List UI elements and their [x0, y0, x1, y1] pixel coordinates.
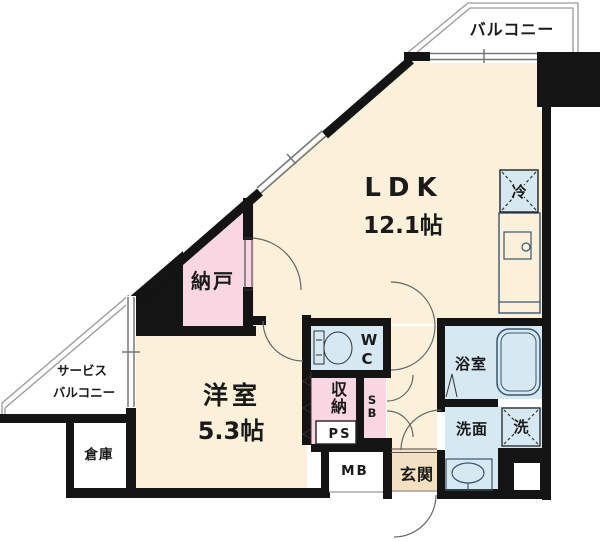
western-room-label: 洋室 [203, 381, 261, 410]
pipe-space-label: PS [329, 427, 352, 442]
service-balcony-label-2: バルコニー [53, 385, 115, 400]
floor-plan: バルコニー サービス バルコニー 冷 [0, 0, 600, 541]
warehouse-label: 倉庫 [84, 446, 114, 463]
ldk-label: LDK [364, 173, 443, 203]
wall-segment [168, 326, 256, 336]
wall-segment [66, 488, 330, 498]
wall-segment [311, 444, 392, 452]
wall-segment [437, 450, 445, 492]
western-room-size-label: 5.3帖 [198, 417, 265, 445]
washroom-label: 洗面 [456, 420, 488, 438]
entrance-label: 玄関 [400, 465, 434, 484]
wall-segment [321, 452, 329, 492]
wall-segment [302, 370, 391, 378]
closet-label-2: 納 [331, 397, 347, 416]
wall-segment [437, 318, 551, 326]
wall-segment [356, 372, 364, 445]
sb-label-2: B [368, 406, 377, 420]
entrance-side-alcove [514, 463, 540, 490]
wall-corner-block [537, 52, 600, 107]
service-balcony-label-1: サービス [57, 363, 107, 378]
ldk-size-label: 12.1帖 [363, 213, 443, 239]
ldk-balcony-window [430, 49, 537, 63]
wall-segment [126, 423, 136, 498]
sb-label-1: S [368, 393, 376, 407]
refrigerator-label: 冷 [511, 183, 526, 201]
balcony-label: バルコニー [470, 20, 555, 39]
refrigerator-space: 冷 [500, 170, 538, 212]
wall-segment [437, 399, 498, 407]
wall-segment [542, 107, 551, 500]
wall-segment [302, 318, 391, 326]
washing-machine-label: 洗 [513, 418, 528, 436]
toilet-label-1: W [361, 331, 378, 349]
bathroom-label: 浴室 [455, 355, 487, 373]
wall-segment [302, 315, 311, 445]
storage-room-label: 納戸 [191, 269, 235, 293]
toilet-label-2: C [361, 350, 372, 368]
wall-segment [383, 444, 392, 499]
floor-plan-canvas: バルコニー サービス バルコニー 冷 [0, 0, 600, 541]
wall-segment [66, 414, 74, 498]
meter-box-label: MB [341, 463, 369, 479]
wall-segment [383, 326, 391, 378]
